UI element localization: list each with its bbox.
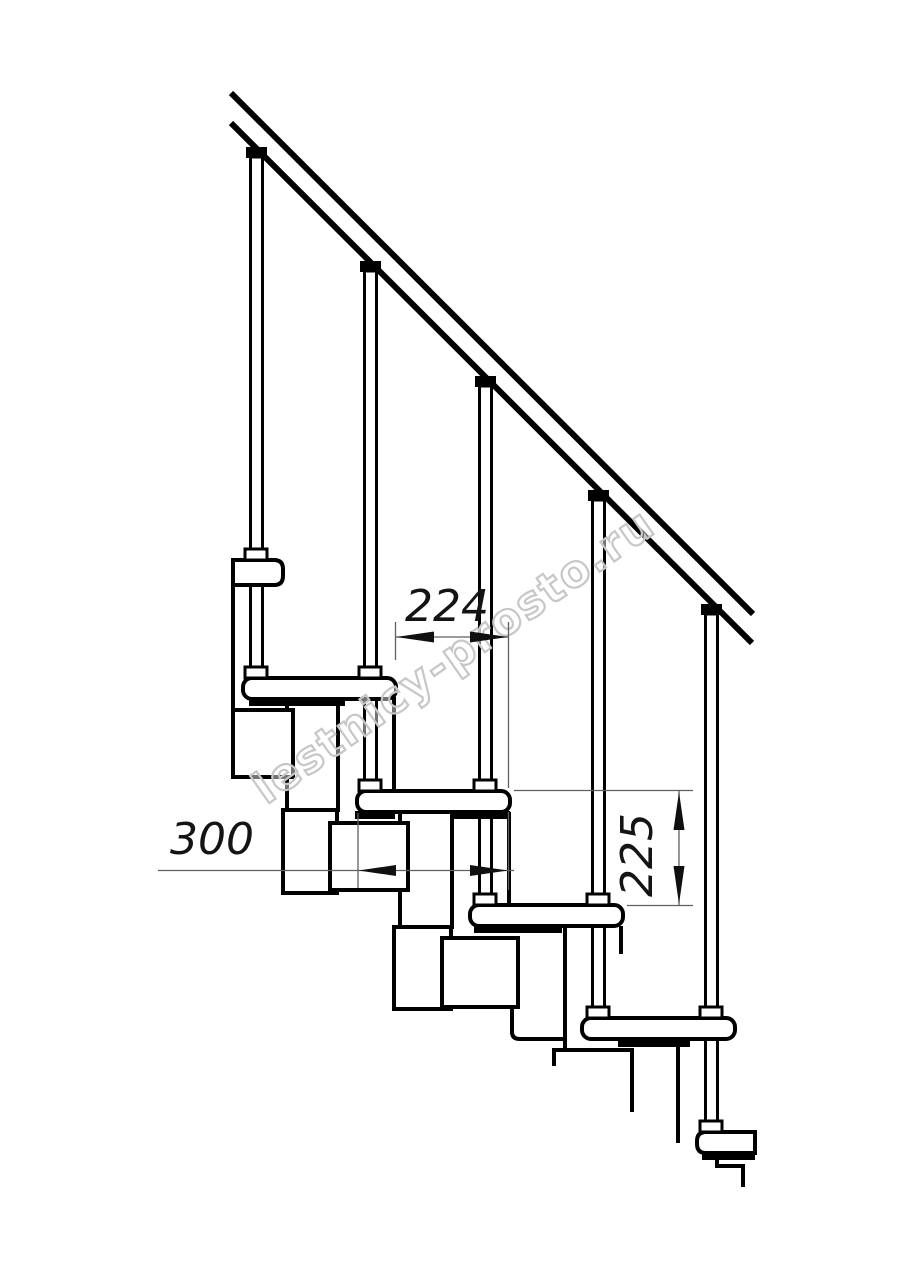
module-connector-bottom (717, 1158, 743, 1187)
baluster-5 (706, 614, 718, 1132)
dimension-depth-label: 300 (170, 814, 254, 865)
tread-1-underside-mount (249, 698, 345, 706)
baluster-clamp (359, 780, 381, 791)
tread-2-underside-mount-right (452, 811, 510, 819)
tread-3-underside-mount (474, 925, 562, 933)
tread-top-partial (233, 560, 283, 585)
module-box-4 (554, 1050, 632, 1112)
staircase-drawing: lestnicy-prosto.ru 224 300 2 (0, 0, 914, 1280)
baluster-1 (251, 157, 263, 678)
baluster-clamp (359, 667, 381, 678)
baluster-clamp (587, 1007, 609, 1018)
arrowhead-up-icon (674, 792, 685, 830)
tread-5-underside-mount (702, 1152, 755, 1160)
tread-2-underside-mount-left (355, 811, 395, 819)
baluster-clamp (587, 894, 609, 905)
tread-bottom-partial (697, 1132, 755, 1153)
baluster-clamp (245, 549, 267, 560)
module-box-2 (330, 823, 408, 890)
baluster-clamp (474, 894, 496, 905)
technical-drawing-page: lestnicy-prosto.ru 224 300 2 (0, 0, 914, 1280)
baluster-clamp (245, 667, 267, 678)
arrowhead-down-icon (674, 866, 685, 904)
tread-3 (470, 905, 623, 926)
tread-4 (582, 1018, 735, 1039)
baluster-clamp (474, 780, 496, 791)
dimension-rise-label: 225 (612, 813, 663, 897)
module-connector-3 (512, 1007, 565, 1039)
baluster-clamp (700, 1007, 722, 1018)
arrowhead-left-icon (396, 632, 434, 643)
module-box-3 (442, 938, 518, 1007)
baluster-clamp (700, 1121, 722, 1132)
dimension-run-label: 224 (405, 581, 489, 632)
tread-2 (357, 791, 510, 812)
tread-4-underside-mount (618, 1040, 690, 1047)
